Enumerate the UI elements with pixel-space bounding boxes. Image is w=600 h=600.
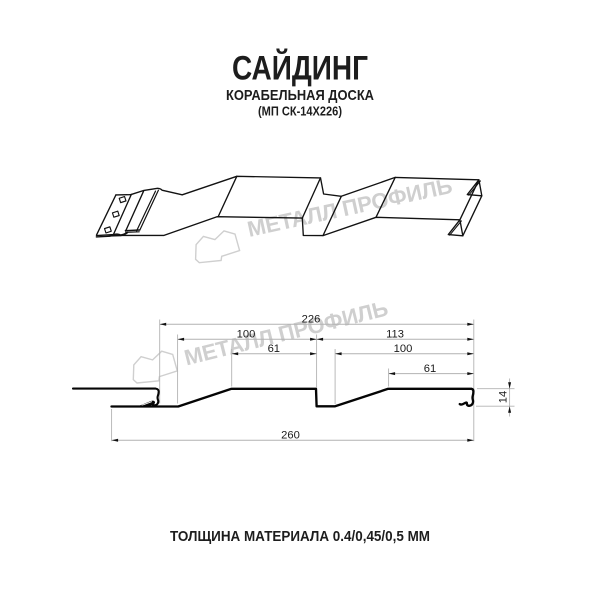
svg-text:226: 226 [302,313,321,325]
svg-text:113: 113 [386,328,404,340]
svg-text:100: 100 [394,343,413,355]
svg-text:САЙДИНГ: САЙДИНГ [232,49,368,88]
svg-text:61: 61 [424,363,436,375]
svg-text:100: 100 [237,328,256,340]
svg-text:260: 260 [281,430,300,442]
svg-text:КОРАБЕЛЬНАЯ ДОСКА: КОРАБЕЛЬНАЯ ДОСКА [226,87,374,104]
svg-text:(МП СК-14Х226): (МП СК-14Х226) [258,103,342,118]
svg-text:61: 61 [268,343,280,355]
svg-text:ТОЛЩИНА МАТЕРИАЛА 0.4/0,45/0,5: ТОЛЩИНА МАТЕРИАЛА 0.4/0,45/0,5 ММ [170,528,430,545]
svg-text:14: 14 [497,391,509,403]
